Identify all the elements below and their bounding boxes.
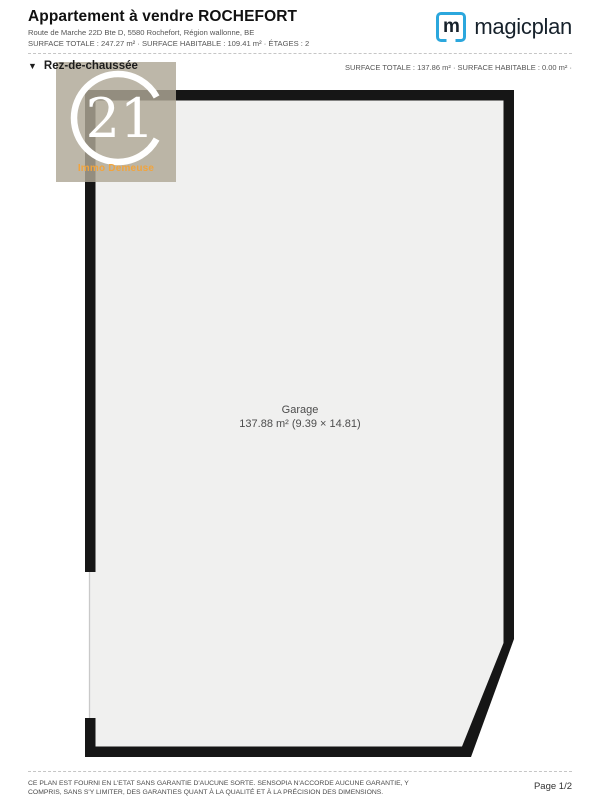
room-label: Garage 137.88 m² (9.39 × 14.81) (150, 404, 450, 431)
magicplan-m-letter: m (443, 17, 460, 36)
document-page: Appartement à vendre ROCHEFORT Route de … (0, 0, 600, 800)
floor-section-stats: SURFACE TOTALE : 137.86 m² · SURFACE HAB… (345, 63, 572, 72)
disclaimer-line-1: CE PLAN EST FOURNI EN L'ETAT SANS GARANT… (28, 779, 409, 788)
page-number: Page 1/2 (534, 781, 572, 792)
magicplan-logo: m magicplan (436, 12, 572, 42)
collapse-triangle-icon: ▼ (28, 61, 37, 71)
magicplan-m-icon: m (436, 12, 466, 42)
disclaimer-line-2: COMPRIS, SANS S'Y LIMITER, DES GARANTIES… (28, 788, 409, 797)
agency-name: Immo Demeuse (56, 163, 176, 174)
century21-seal-icon: 21 (58, 64, 174, 168)
floor-name: Rez-de-chaussée (44, 60, 138, 72)
room-name: Garage (150, 404, 450, 418)
century21-watermark: 21 Immo Demeuse (56, 62, 176, 182)
century21-number: 21 (86, 87, 155, 150)
footer-disclaimer: CE PLAN EST FOURNI EN L'ETAT SANS GARANT… (28, 779, 409, 797)
floor-section-header: ▼ Rez-de-chaussée SURFACE TOTALE : 137.8… (28, 60, 572, 72)
floor-section-title: ▼ Rez-de-chaussée (28, 60, 138, 72)
room-dimensions: 137.88 m² (9.39 × 14.81) (150, 418, 450, 432)
magicplan-wordmark: magicplan (474, 14, 572, 40)
